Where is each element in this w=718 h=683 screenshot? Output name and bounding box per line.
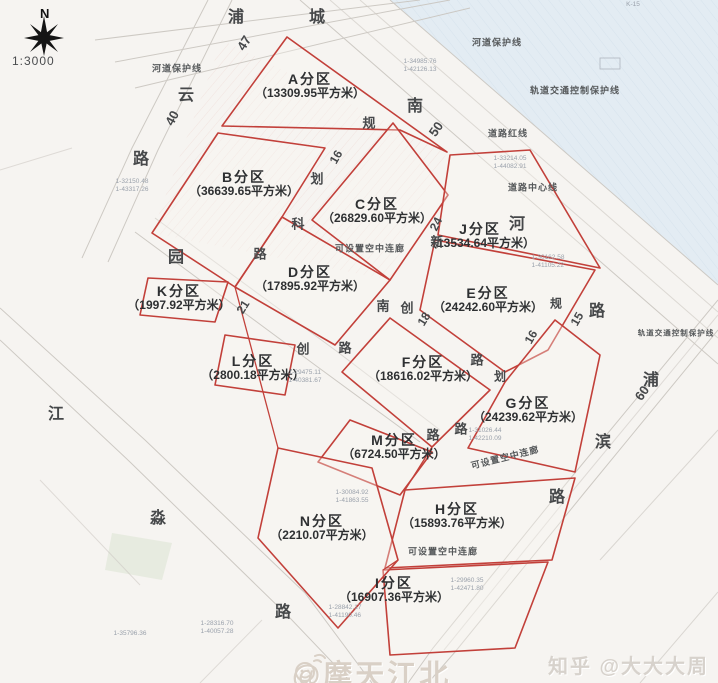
compass-rose: N 1:3000 (10, 4, 80, 74)
weibo-emoji-icon (292, 652, 326, 683)
watermark-right-text: 知乎 @大大大周 (548, 656, 709, 678)
watermark-left: @摩天江北 (292, 652, 451, 683)
green-patch (105, 533, 172, 580)
map-graphics (0, 0, 718, 683)
planning-map: N 1:3000 A分区（13309.95平方米）B分区（36639.65平方米… (0, 0, 718, 683)
watermark-right: 知乎 @大大大周 (548, 650, 709, 679)
map-scale: 1:3000 (12, 54, 55, 68)
